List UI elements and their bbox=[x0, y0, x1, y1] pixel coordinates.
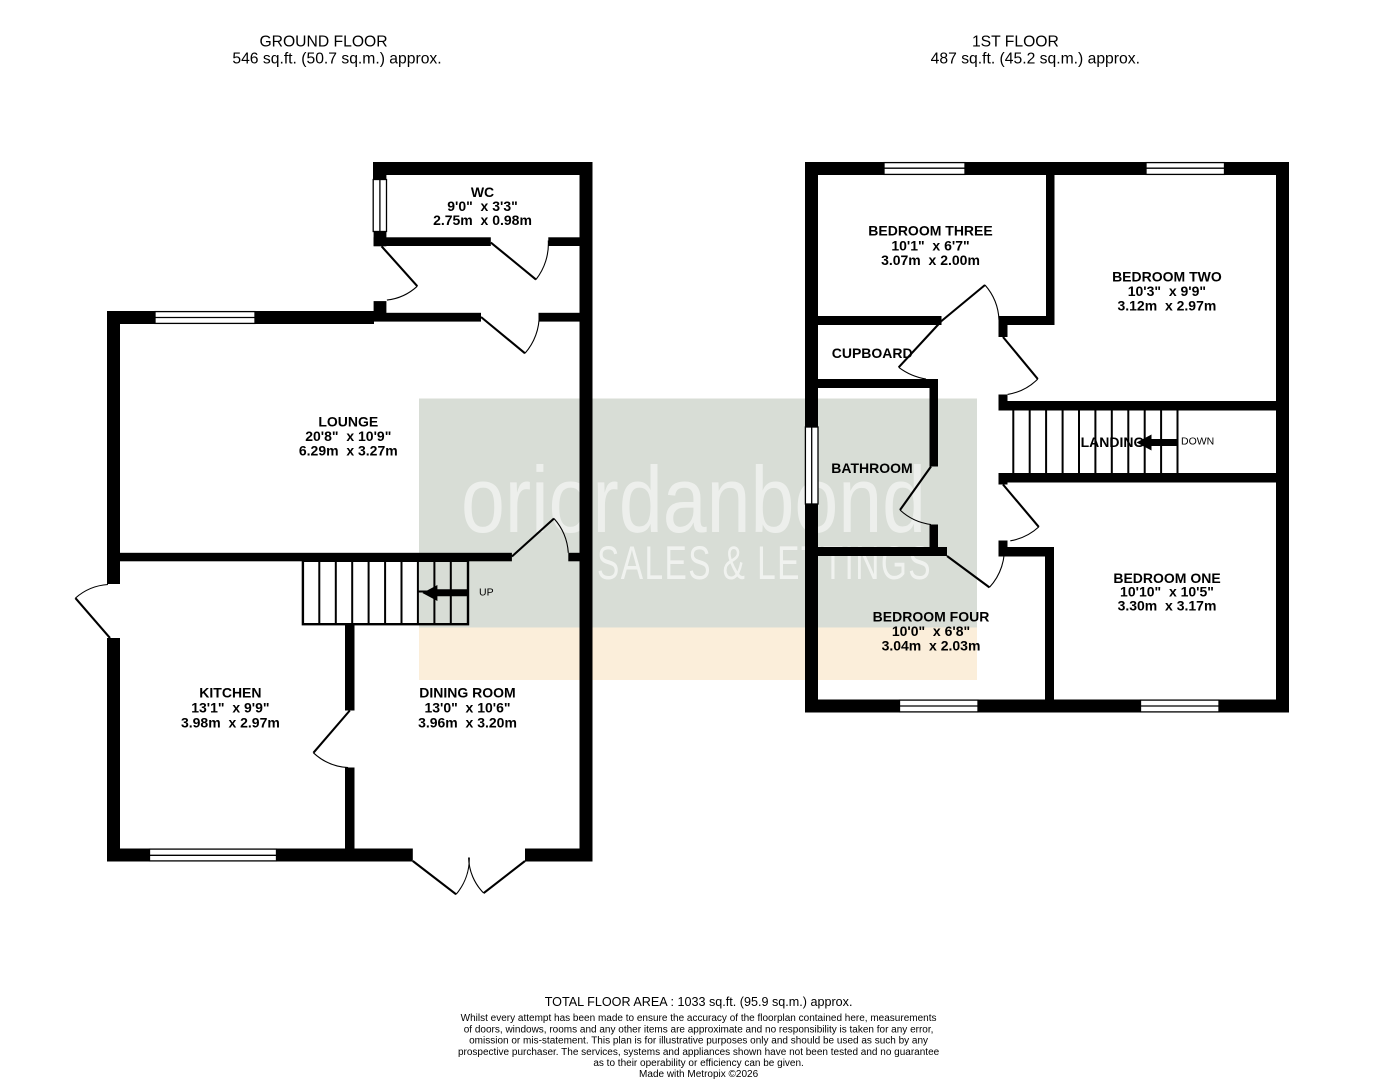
svg-text:13'0" x 10'6": 13'0" x 10'6" bbox=[424, 700, 510, 716]
svg-text:3.96m x 3.20m: 3.96m x 3.20m bbox=[418, 715, 517, 731]
svg-text:3.12m x 2.97m: 3.12m x 2.97m bbox=[1117, 298, 1216, 314]
svg-text:3.07m x 2.00m: 3.07m x 2.00m bbox=[881, 252, 980, 268]
svg-text:Made with Metropix ©2026: Made with Metropix ©2026 bbox=[639, 1069, 759, 1080]
svg-text:KITCHEN: KITCHEN bbox=[199, 685, 261, 701]
svg-text:3.04m x 2.03m: 3.04m x 2.03m bbox=[882, 638, 981, 654]
svg-text:TOTAL FLOOR AREA : 1033 sq.ft.: TOTAL FLOOR AREA : 1033 sq.ft. (95.9 sq.… bbox=[545, 995, 853, 1009]
svg-text:13'1" x 9'9": 13'1" x 9'9" bbox=[191, 700, 269, 716]
svg-text:as to their operability or eff: as to their operability or efficiency ca… bbox=[593, 1058, 804, 1069]
svg-text:20'8" x 10'9": 20'8" x 10'9" bbox=[305, 428, 391, 444]
svg-text:3.98m x 2.97m: 3.98m x 2.97m bbox=[181, 715, 280, 731]
svg-text:LANDING: LANDING bbox=[1081, 434, 1145, 450]
svg-text:DOWN: DOWN bbox=[1181, 436, 1214, 448]
svg-text:prospective purchaser. The ser: prospective purchaser. The services, sys… bbox=[458, 1047, 940, 1058]
svg-text:3.30m x 3.17m: 3.30m x 3.17m bbox=[1118, 598, 1217, 614]
svg-text:CUPBOARD: CUPBOARD bbox=[832, 345, 913, 361]
svg-text:SALES & LETTINGS: SALES & LETTINGS bbox=[597, 536, 932, 589]
svg-text:10'1" x 6'7": 10'1" x 6'7" bbox=[891, 237, 969, 253]
svg-text:UP: UP bbox=[479, 587, 494, 599]
svg-text:1ST FLOOR: 1ST FLOOR bbox=[972, 34, 1059, 51]
svg-text:of doors, windows, rooms and a: of doors, windows, rooms and any other i… bbox=[464, 1024, 934, 1035]
svg-text:LOUNGE: LOUNGE bbox=[318, 414, 378, 430]
svg-text:546 sq.ft. (50.7 sq.m.) approx: 546 sq.ft. (50.7 sq.m.) approx. bbox=[232, 51, 441, 68]
svg-text:GROUND FLOOR: GROUND FLOOR bbox=[259, 34, 387, 51]
svg-text:Whilst every attempt has been: Whilst every attempt has been made to en… bbox=[461, 1013, 937, 1024]
svg-text:487 sq.ft. (45.2 sq.m.) approx: 487 sq.ft. (45.2 sq.m.) approx. bbox=[931, 51, 1140, 68]
svg-text:BATHROOM: BATHROOM bbox=[831, 460, 912, 476]
svg-text:omission or mis-statement. Thi: omission or mis-statement. This plan is … bbox=[469, 1036, 928, 1047]
svg-text:BEDROOM THREE: BEDROOM THREE bbox=[868, 223, 992, 239]
svg-text:DINING ROOM: DINING ROOM bbox=[419, 685, 515, 701]
svg-text:6.29m x 3.27m: 6.29m x 3.27m bbox=[299, 443, 398, 459]
svg-text:2.75m x 0.98m: 2.75m x 0.98m bbox=[433, 212, 532, 228]
